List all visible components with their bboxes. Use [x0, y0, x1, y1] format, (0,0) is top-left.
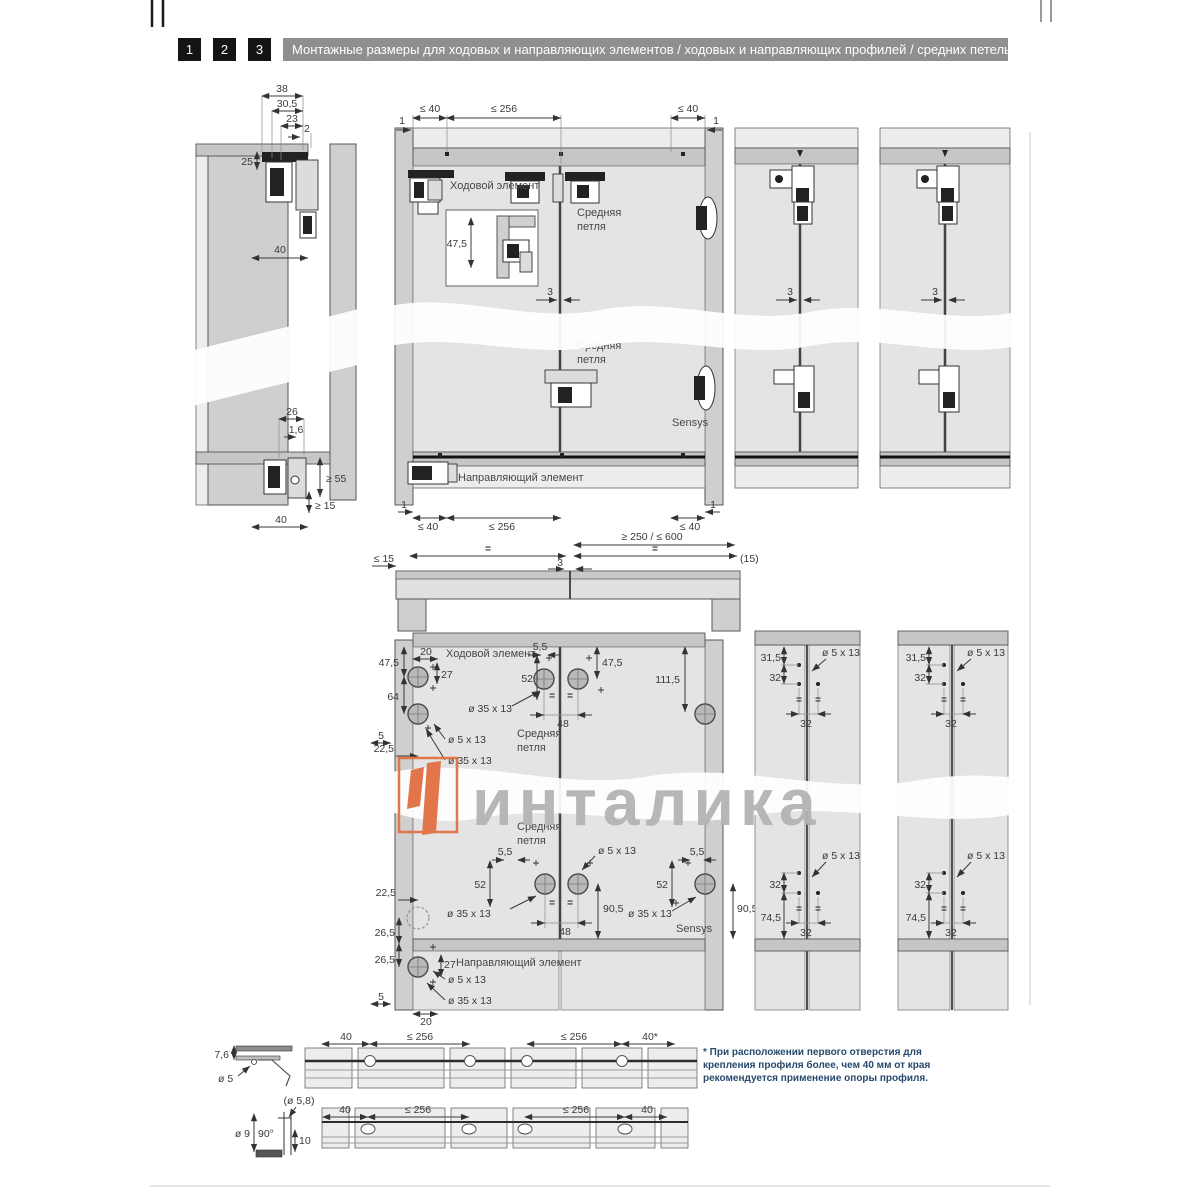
- dim-label: 90,5: [737, 903, 758, 915]
- dim-label: 31,5: [906, 652, 927, 664]
- dim-label: 26: [286, 406, 298, 418]
- profile-section-1: 7,6 ø 5: [214, 1046, 292, 1086]
- dim-label: 27: [444, 959, 456, 971]
- dim-label: 5: [378, 730, 384, 742]
- dim-label: 3: [932, 286, 938, 298]
- dim-label: 32: [800, 927, 812, 939]
- dim-label: 5,5: [533, 641, 548, 653]
- bottom-shelf: [196, 452, 330, 464]
- dim-label: ≤ 40: [420, 103, 441, 115]
- dim-label: 64: [387, 691, 399, 703]
- dim-label: ø 35 x 13: [447, 908, 491, 920]
- dim-label: 20: [420, 646, 432, 658]
- dim-label: 47,5: [379, 657, 400, 669]
- footnote: * При расположении первого отверстия для…: [703, 1047, 971, 1085]
- guide-element-label: Направляющий элемент: [458, 472, 584, 484]
- middle-hinge-label: Средняя: [577, 207, 621, 219]
- dim-label: 74,5: [906, 912, 927, 924]
- sensys-label: Sensys: [672, 417, 709, 429]
- dim-label: ø 9: [235, 1128, 250, 1140]
- dim-label: 32: [800, 718, 812, 730]
- bottom-rail: [413, 939, 705, 951]
- left-section-view: 38 30,5 23 2 25 40 26 1,6 ≥ 55 ≥ 15 40: [196, 83, 356, 527]
- dim-label: 48: [559, 926, 571, 938]
- dim-label: 25: [241, 156, 253, 168]
- profile-segments: [322, 1108, 688, 1148]
- dim-label: 10: [299, 1135, 311, 1147]
- door-group-b: 3: [880, 128, 1010, 488]
- top-rail: [413, 148, 705, 166]
- dim-label: 32: [945, 927, 957, 939]
- running-element-label: Ходовой элемент: [446, 648, 535, 660]
- drill-pattern-b: 31,5 32 = = 32 ø 5 x 13 32 74,5 = = 32 ø…: [898, 631, 1008, 1010]
- plan-view: ≤ 15 = = 3 ≥ 250 / ≤ 600 (15): [372, 531, 759, 631]
- sensys-label: Sensys: [676, 923, 713, 935]
- dim-label: 52: [474, 879, 486, 891]
- dim-label: ø 35 x 13: [448, 995, 492, 1007]
- dim-label: 1,6: [289, 424, 304, 436]
- profile-top-view-2: 40 ≤ 256 ≤ 256 40: [322, 1104, 688, 1148]
- dim-label: 26,5: [375, 954, 396, 966]
- middle-hinge-label: петля: [577, 354, 606, 366]
- dim-label: ø 5 x 13: [448, 734, 486, 746]
- dim-label: ≥ 55: [326, 473, 347, 485]
- guide-element-label: Направляющий элемент: [456, 957, 582, 969]
- dim-label: ø 5 x 13: [967, 850, 1005, 862]
- dim-label: 5,5: [690, 846, 705, 858]
- dim-label: 22,5: [376, 887, 397, 899]
- guide-element-hardware: [264, 458, 306, 498]
- dim-label: (15): [740, 553, 759, 565]
- dim-label: 111,5: [655, 674, 680, 686]
- middle-hinge-label: петля: [517, 742, 546, 754]
- dim-label: ≤ 40: [418, 521, 439, 533]
- dim-label: 52: [656, 879, 668, 891]
- dim-label: 40: [275, 514, 287, 526]
- dim-label: 1: [713, 115, 719, 127]
- dim-label: ≤ 256: [491, 103, 517, 115]
- dim-label: 47,5: [602, 657, 623, 669]
- dim-label: =: [652, 544, 658, 555]
- dim-label: 5,5: [498, 846, 513, 858]
- dim-label: 27: [441, 669, 453, 681]
- dim-label: =: [796, 904, 802, 915]
- running-element-label: Ходовой элемент: [450, 180, 539, 192]
- dim-label: 74,5: [761, 912, 782, 924]
- dim-label: =: [815, 904, 821, 915]
- middle-hinge-label: петля: [577, 221, 606, 233]
- dim-label: 40: [274, 244, 286, 256]
- dim-label: ø 5 x 13: [448, 974, 486, 986]
- dim-label: ≤ 256: [407, 1031, 433, 1043]
- dim-label: =: [960, 695, 966, 706]
- dim-label: =: [941, 904, 947, 915]
- dim-label: 40: [641, 1104, 653, 1116]
- dim-label: 20: [420, 1016, 432, 1028]
- dim-label: 40: [340, 1031, 352, 1043]
- dim-label: 3: [557, 557, 563, 569]
- dim-label: ø 5 x 13: [822, 850, 860, 862]
- dim-label: 90,5: [603, 903, 624, 915]
- dim-label: =: [567, 691, 573, 702]
- dim-label: ≤ 40: [680, 521, 701, 533]
- dim-label: ≤ 256: [563, 1104, 589, 1116]
- profile-segments: [305, 1048, 697, 1088]
- dim-label: 5: [378, 991, 384, 1003]
- dim-label: ø 35 x 13: [628, 908, 672, 920]
- dim-label: 32: [914, 672, 926, 684]
- dim-label: =: [567, 898, 573, 909]
- dim-label: ≥ 250 / ≤ 600: [621, 531, 682, 543]
- dim-label: =: [485, 544, 491, 555]
- dim-label: ≤ 256: [561, 1031, 587, 1043]
- dim-label: 1: [399, 115, 405, 127]
- dim-label: =: [549, 898, 555, 909]
- dim-label: 7,6: [214, 1049, 229, 1061]
- door-group-a: 3: [735, 128, 858, 488]
- dim-label: ≤ 256: [405, 1104, 431, 1116]
- dim-label: =: [941, 695, 947, 706]
- dim-label: 26,5: [375, 927, 396, 939]
- dim-label: ø 5 x 13: [822, 647, 860, 659]
- guide-element-hardware: [408, 462, 457, 484]
- dim-label: ø 5 x 13: [967, 647, 1005, 659]
- dim-label: 90°: [258, 1128, 274, 1140]
- technical-drawing: 38 30,5 23 2 25 40 26 1,6 ≥ 55 ≥ 15 40: [0, 0, 1200, 1200]
- dim-label: 52: [521, 673, 533, 685]
- top-rail: [413, 633, 705, 647]
- dim-label: 32: [769, 879, 781, 891]
- detail-inset: 47,5: [446, 210, 538, 286]
- dim-label: 31,5: [761, 652, 782, 664]
- dim-label: 23: [286, 113, 298, 125]
- watermark-text: инталика: [472, 765, 822, 839]
- dim-label: 1: [710, 499, 716, 511]
- profile-top-view-1: 40 ≤ 256 ≤ 256 40*: [305, 1031, 697, 1088]
- dim-label: ø 5: [218, 1073, 233, 1085]
- dim-label: =: [960, 904, 966, 915]
- page: 1 2 3 Монтажные размеры для ходовых и на…: [0, 0, 1200, 1200]
- dim-label: ≤ 40: [678, 103, 699, 115]
- dim-label: 40: [339, 1104, 351, 1116]
- dim-label: =: [796, 695, 802, 706]
- dim-label: =: [815, 695, 821, 706]
- dim-label: 32: [914, 879, 926, 891]
- dim-label: 22,5: [374, 743, 395, 755]
- dim-label: 30,5: [277, 98, 298, 110]
- dim-label: 1: [401, 499, 407, 511]
- dim-label: 32: [769, 672, 781, 684]
- dim-label: 40*: [642, 1031, 658, 1043]
- dim-label: 3: [547, 286, 553, 298]
- dim-label: ≥ 15: [315, 500, 336, 512]
- dim-label: 3: [787, 286, 793, 298]
- profile-section-2: (ø 5,8) ø 9 90° 10: [235, 1095, 315, 1157]
- dim-label: ø 5 x 13: [598, 845, 636, 857]
- dim-label: =: [549, 691, 555, 702]
- dim-label: ≤ 15: [374, 553, 395, 565]
- top-cap: [413, 128, 705, 148]
- dim-label: (ø 5,8): [284, 1095, 315, 1107]
- dim-label: 32: [945, 718, 957, 730]
- dim-label: ≤ 256: [489, 521, 515, 533]
- dim-label: 47,5: [447, 238, 468, 250]
- dim-label: ø 35 x 13: [468, 703, 512, 715]
- dim-label: 2: [304, 123, 310, 135]
- middle-hinge-label: Средняя: [517, 728, 561, 740]
- dim-label: 38: [276, 83, 288, 95]
